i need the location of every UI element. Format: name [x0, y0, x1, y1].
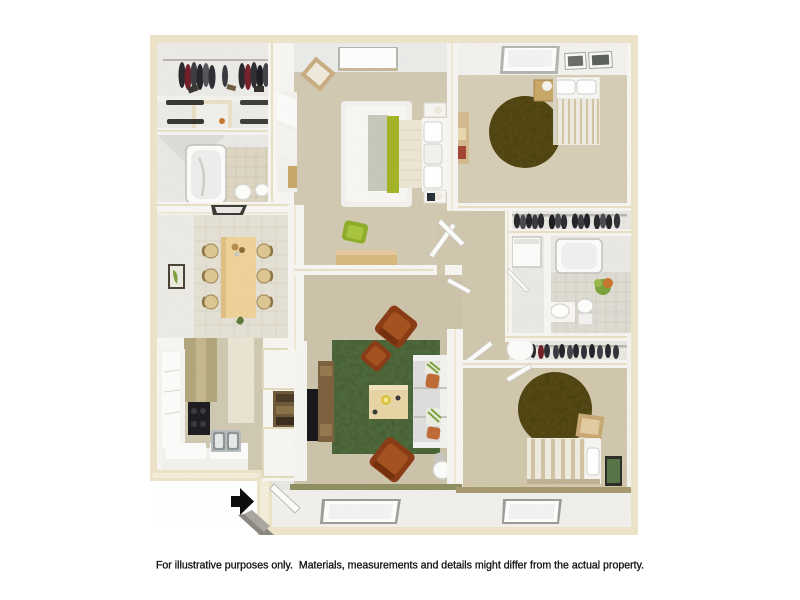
svg-text:For illustrative purposes only: For illustrative purposes only. Material… — [156, 560, 644, 572]
